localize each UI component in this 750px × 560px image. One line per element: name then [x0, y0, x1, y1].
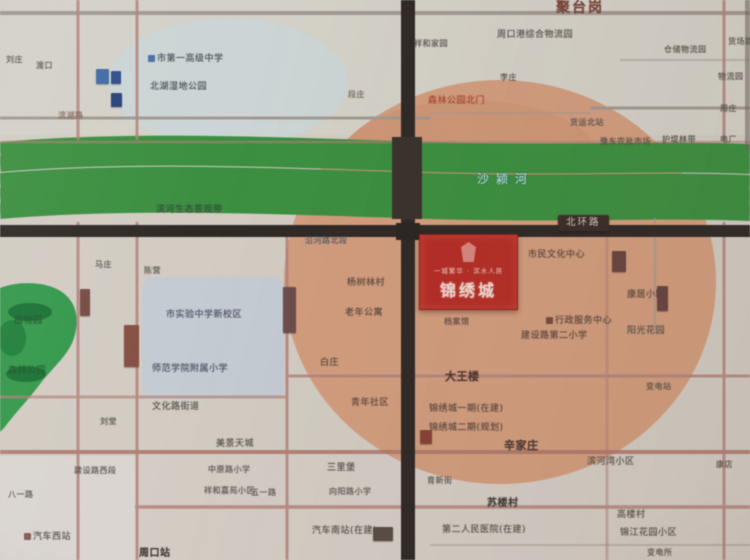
river-name-label: 沙颍河	[477, 173, 534, 185]
map-label-text: 大王楼	[445, 370, 480, 383]
map-label-text: 森林公园	[8, 366, 46, 376]
map-label: 市实验中学新校区	[166, 311, 242, 320]
map-label-text: 滨河湾小区	[587, 457, 635, 467]
map-label: 中原路小学	[208, 466, 251, 474]
map-label: 周口港综合物流园	[497, 31, 573, 40]
map-label: 市第一高级中学	[148, 55, 224, 64]
poi-icon	[546, 317, 553, 324]
map-label-text: 周口港综合物流园	[497, 30, 573, 40]
map-label: 辛家庄	[504, 440, 539, 451]
map-label: 货运北站	[570, 119, 604, 127]
map-label: 锦绣城一期(在建)	[429, 405, 504, 414]
building-marker	[124, 325, 139, 367]
map-label: 祥和嘉苑小区	[204, 487, 255, 495]
map-label: 康居小区	[627, 291, 665, 300]
map-label-text: 沿河路北段	[305, 236, 348, 245]
road-name-capsule: 北环路	[558, 215, 609, 231]
building-marker	[80, 289, 90, 316]
map-label: 杨树林村	[347, 279, 385, 288]
map-label-text: 马庄	[95, 260, 112, 269]
map-label-text: 陈营	[144, 266, 161, 275]
map-label: 陈营	[144, 267, 161, 275]
map-label-text: 锦绣城二期(规划)	[429, 423, 504, 433]
map-label-text: 老年公寓	[345, 308, 383, 318]
map-label: 周口站	[139, 549, 171, 559]
map-label: 北湖湿地公园	[150, 83, 207, 92]
map-label: 五一路	[251, 489, 277, 497]
map-label: 白庄	[320, 359, 339, 368]
map-label: 周庄	[720, 105, 737, 113]
map-label: 档案馆	[444, 318, 470, 326]
map-label-text: 李庄	[500, 73, 517, 82]
map-label-text: 变电所	[647, 548, 673, 557]
poi-icon	[148, 55, 155, 62]
map-label: 八一路	[8, 491, 34, 499]
map-label-text: 苏楼村	[487, 498, 519, 509]
map-label: 变电所	[647, 549, 673, 557]
project-logo-icon	[461, 242, 476, 262]
map-label-text: 刘庄	[6, 55, 23, 64]
map-label-text: 护堤林带	[662, 135, 696, 144]
map-label-text: 周口站	[139, 548, 171, 559]
map-label: 文化路街道	[152, 403, 200, 412]
map-label: 森林公园	[8, 367, 46, 376]
map-label: 阳光花园	[627, 327, 665, 336]
map-label-text: 档案馆	[444, 317, 470, 326]
map-label-text: 祥和嘉苑小区	[204, 486, 255, 495]
map-label: 沿河路北段	[305, 237, 348, 245]
map-label: 滨湖路	[58, 112, 84, 120]
map-label: 变电站	[646, 383, 672, 391]
map-label: 市民文化中心	[528, 251, 585, 260]
map-label: 护堤林带	[662, 136, 696, 144]
map-label-text: 向阳路小学	[329, 487, 372, 496]
map-label: 聚台岗	[556, 1, 604, 15]
map-label: 货场路	[728, 38, 750, 46]
map-label-text: 汽车南站(在建)	[312, 526, 377, 536]
map-label: 建设路西段	[74, 467, 117, 475]
map-label: 康店	[716, 461, 733, 469]
map-label-text: 豫东农批市场	[600, 137, 651, 146]
map-label: 锦江花园小区	[620, 529, 677, 538]
map-label: 老年公寓	[345, 309, 383, 318]
map-label-text: 滨河生态景观带	[156, 205, 223, 215]
map-label-text: 祥和家园	[414, 39, 448, 48]
map-label: 青年社区	[351, 399, 389, 408]
map-label: 三里堡	[327, 464, 356, 473]
map-label-text: 滨湖路	[58, 111, 84, 120]
map-label: 段庄	[348, 91, 365, 99]
map-label-text: 美景天城	[216, 439, 254, 449]
campus-zone	[142, 277, 284, 399]
map-label: 师范学院附属小学	[152, 365, 228, 374]
map-label-text: 青年社区	[351, 398, 389, 408]
map-label: 仓储物流园	[664, 46, 707, 54]
map-label-text: 辛家庄	[504, 439, 539, 452]
map-label: 豫东农批市场	[600, 138, 651, 146]
map-label-text: 市民文化中心	[528, 250, 585, 260]
map-label-text: 康店	[716, 460, 733, 469]
poi-marker	[96, 69, 109, 84]
map-label: 大王楼	[445, 371, 480, 382]
map-label: 祥和家园	[414, 40, 448, 48]
river-bank-south	[0, 205, 750, 213]
map-label: 森林公园北门	[428, 97, 485, 106]
map-label: 美景天城	[216, 440, 254, 449]
map-label-text: 建设路第二小学	[521, 331, 588, 341]
photo-edge-shadow	[745, 0, 750, 150]
map-label-text: 第二人民医院(在建)	[442, 525, 526, 535]
map-label: 植物园	[14, 317, 43, 326]
map-label-text: 康居小区	[627, 290, 665, 300]
poi-icon	[24, 533, 31, 540]
map-label-text: 八一路	[8, 490, 34, 499]
map-label: 汽车西站	[24, 533, 71, 542]
map-label-text: 渡口	[36, 61, 53, 70]
map-label: 滨河生态景观带	[156, 206, 223, 215]
map-label-text: 杨树林村	[347, 278, 385, 288]
map-label: 渡口	[36, 62, 53, 70]
map-label-text: 三里堡	[327, 463, 356, 473]
map-label-text: 师范学院附属小学	[152, 364, 228, 374]
map-label: 苏楼村	[487, 499, 519, 509]
map-photo: 刘庄渡口市第一高级中学北湖湿地公园滨湖路段庄滨河生态景观带护堤林带聚台岗周口港综…	[0, 0, 750, 560]
river-shallow	[0, 158, 750, 166]
map-label: 向阳路小学	[329, 488, 372, 496]
map-label-text: 锦绣城一期(在建)	[429, 404, 504, 414]
project-name: 锦绣城	[440, 277, 497, 301]
map-label: 物流园	[718, 73, 744, 81]
map-label-text: 植物园	[14, 316, 43, 326]
building-marker	[283, 287, 296, 333]
map-label: 马庄	[95, 261, 112, 269]
map-label-text: 变电站	[646, 382, 672, 391]
map-label-text: 汽车西站	[33, 532, 71, 542]
map-label-text: 仓储物流园	[664, 45, 707, 54]
map-label-text: 段庄	[348, 90, 365, 99]
north-lake-zone	[108, 18, 348, 146]
map-label-text: 中原路小学	[208, 465, 251, 474]
map-label: 刘庄	[6, 56, 23, 64]
map-label: 育新街	[427, 477, 453, 485]
map-label-text: 刘堂	[100, 417, 117, 426]
map-label: 建设路第二小学	[521, 332, 588, 341]
map-label: 汽车南站(在建)	[312, 527, 377, 536]
map-label: 刘堂	[100, 418, 117, 426]
map-label: 行政服务中心	[546, 317, 612, 326]
map-label-text: 物流园	[718, 72, 744, 81]
map-label-text: 高楼村	[617, 510, 646, 520]
map-label-text: 文化路街道	[152, 402, 200, 412]
map-label-text: 森林公园北门	[428, 96, 485, 106]
project-tagline: 一城繁华 · 滨水人居	[434, 265, 503, 275]
map-label-text: 周庄	[720, 104, 737, 113]
river-shallow	[0, 190, 750, 198]
poi-marker	[111, 71, 121, 84]
project-label-box: 一城繁华 · 滨水人居 锦绣城	[419, 234, 518, 310]
map-label-text: 货场路	[728, 37, 750, 46]
map-label: 第二人民医院(在建)	[442, 526, 526, 535]
map-label-text: 阳光花园	[627, 326, 665, 336]
map-label-text: 行政服务中心	[555, 316, 612, 326]
map-label: 电厂	[720, 136, 737, 144]
river-water	[0, 175, 750, 183]
map-surface: 刘庄渡口市第一高级中学北湖湿地公园滨湖路段庄滨河生态景观带护堤林带聚台岗周口港综…	[0, 0, 750, 560]
map-label-text: 货运北站	[570, 118, 604, 127]
map-label-text: 锦江花园小区	[620, 528, 677, 538]
map-label-text: 北湖湿地公园	[150, 82, 207, 92]
map-label: 滨河湾小区	[587, 458, 635, 467]
main-intersection	[396, 223, 420, 240]
map-label-text: 白庄	[320, 358, 339, 368]
map-label-text: 市实验中学新校区	[166, 310, 242, 320]
map-label-text: 聚台岗	[556, 0, 604, 16]
map-label-text: 建设路西段	[74, 466, 117, 475]
map-label-text: 五一路	[251, 488, 277, 497]
map-label: 锦绣城二期(规划)	[429, 424, 504, 433]
map-label-text: 市第一高级中学	[157, 54, 224, 64]
map-label: 李庄	[500, 74, 517, 82]
river-bridge	[392, 137, 422, 219]
poi-marker	[111, 93, 122, 107]
map-label-text: 育新街	[427, 476, 453, 485]
map-label-text: 电厂	[720, 135, 737, 144]
map-label: 高楼村	[617, 511, 646, 520]
building-marker	[612, 251, 626, 272]
